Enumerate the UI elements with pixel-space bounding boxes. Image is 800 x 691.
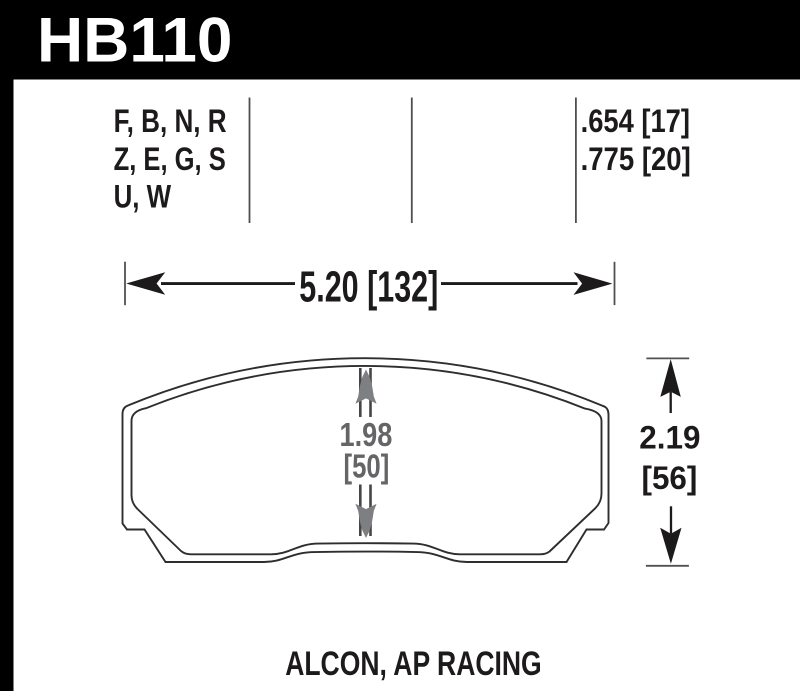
svg-text:2.19: 2.19 — [639, 419, 700, 455]
svg-text:.775 [20]: .775 [20] — [581, 140, 691, 177]
svg-text:5.20 [132]: 5.20 [132] — [299, 263, 438, 311]
svg-text:F, B, N, R: F, B, N, R — [114, 102, 227, 139]
svg-text:U, W: U, W — [114, 177, 172, 214]
svg-text:Z, E, G, S: Z, E, G, S — [114, 140, 226, 177]
svg-text:[50]: [50] — [344, 447, 390, 484]
svg-text:ALCON, AP RACING: ALCON, AP RACING — [285, 645, 542, 683]
svg-text:[56]: [56] — [642, 460, 698, 496]
svg-text:.654 [17]: .654 [17] — [581, 102, 690, 139]
svg-text:HB110: HB110 — [37, 6, 233, 76]
